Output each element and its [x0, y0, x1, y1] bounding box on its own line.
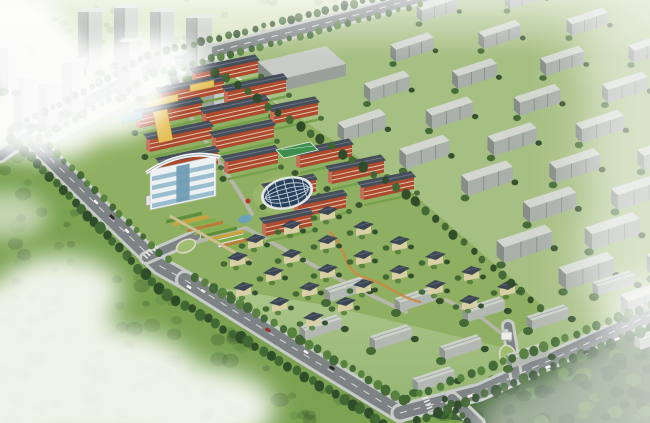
se-gatehouse-dome: [505, 329, 509, 333]
masterplan-svg: Aerial bird's-eye rendering of a residen…: [0, 0, 650, 423]
se-gatehouse: [501, 332, 512, 340]
red-sculpture: [246, 199, 251, 204]
aerial-masterplan-rendering: Aerial bird's-eye rendering of a residen…: [0, 0, 650, 423]
